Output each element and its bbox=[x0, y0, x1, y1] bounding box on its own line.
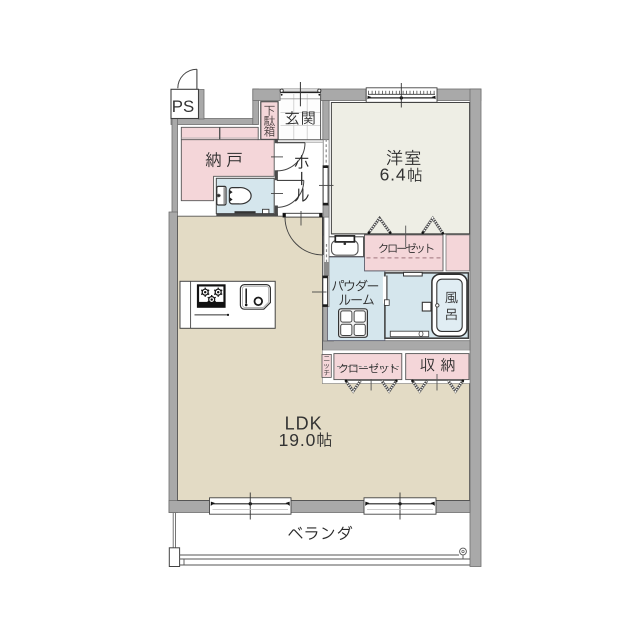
svg-text:6.4: 6.4 bbox=[380, 165, 407, 185]
svg-text:19.0: 19.0 bbox=[279, 430, 317, 450]
svg-text:PS: PS bbox=[172, 97, 194, 116]
